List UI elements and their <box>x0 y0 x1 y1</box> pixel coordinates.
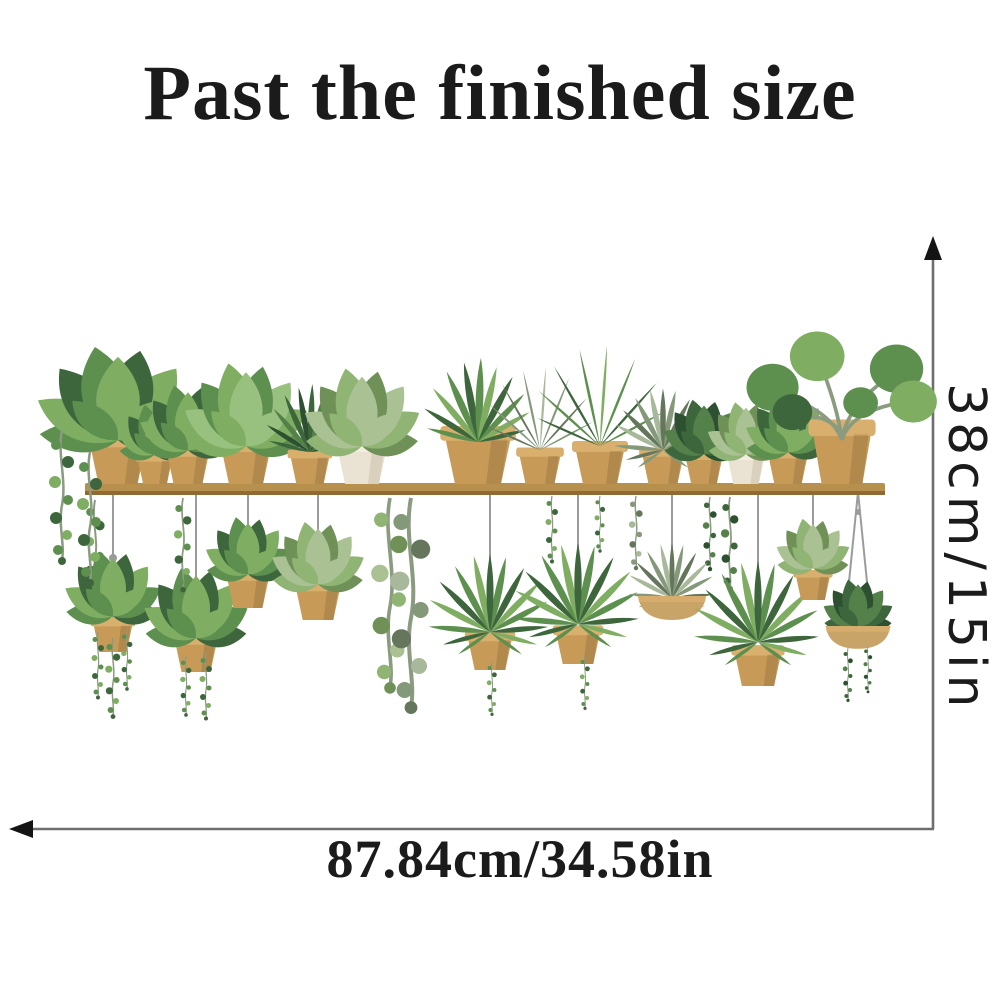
left-arrowhead-icon <box>9 820 33 838</box>
hanging-plant <box>514 492 639 710</box>
width-dimension-label: 87.84cm/34.58in <box>160 828 880 890</box>
shelf-plank <box>85 483 885 495</box>
hanging-plant <box>59 492 167 719</box>
hanging-plant <box>819 492 896 702</box>
product-size-diagram: Past the finished size <box>0 0 1000 1000</box>
hanging-plant <box>772 492 854 600</box>
potted-plant <box>423 358 531 484</box>
height-dimension-label: 38cm/15in <box>936 383 996 714</box>
up-arrowhead-icon <box>924 236 942 260</box>
hanging-plant <box>428 492 548 716</box>
hanging-plants <box>59 492 897 721</box>
